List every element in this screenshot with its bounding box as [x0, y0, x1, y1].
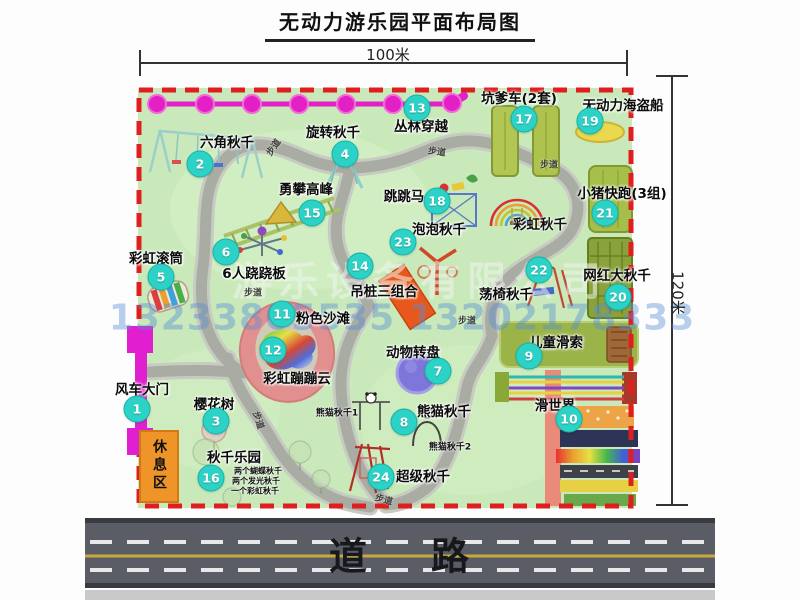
rest-area-label: 休息区 [149, 439, 169, 493]
attraction-badge-17: 17 [511, 106, 538, 133]
jumping-horse-icon [432, 174, 478, 226]
super-swing-icon [350, 444, 390, 493]
sub-label-0: 彩虹秋千 [513, 213, 567, 233]
walking-paths [150, 141, 578, 507]
hexagon-swing-icon [150, 130, 262, 178]
footpath-label-5: 步道 [250, 409, 268, 430]
park-lawn [138, 88, 632, 508]
attraction-badge-8: 8 [391, 409, 418, 436]
attraction-label-22: 荡椅秋千 [479, 283, 533, 303]
attraction-badge-9: 9 [516, 343, 543, 370]
jungle-crossing-line-icon [148, 94, 464, 113]
map-annotations: 风车大门1六角秋千2樱花树3旋转秋千4彩虹滚筒56人跷跷板6动物转盘7熊猫秋千8… [0, 0, 800, 600]
attraction-badge-2: 2 [187, 151, 214, 178]
attraction-badge-21: 21 [592, 200, 619, 227]
width-dimension-line [140, 50, 627, 76]
attraction-label-11: 粉色沙滩 [296, 307, 350, 327]
attraction-badge-1: 1 [124, 396, 151, 423]
sub-label-3: 两个蝴蝶秋千 [234, 466, 282, 477]
attraction-badge-12: 12 [260, 337, 287, 364]
pit-car-icon [492, 106, 559, 176]
attraction-label-17: 坑爹车(2套) [481, 87, 557, 107]
sub-label-5: 一个彩虹秋千 [231, 486, 279, 497]
seesaw-icon [237, 227, 287, 257]
attraction-badge-20: 20 [605, 284, 632, 311]
animal-turntable-icon [397, 353, 437, 393]
attraction-label-24: 超级秋千 [396, 465, 450, 485]
attraction-label-2: 六角秋千 [200, 131, 254, 151]
bubble-swing-icon [418, 248, 457, 295]
swing-park-trees-icon [193, 439, 330, 506]
width-dimension-label: 100米 [366, 44, 410, 65]
sub-label-1: 熊猫秋千1 [316, 406, 358, 419]
big-swing-net-icon [588, 238, 632, 318]
map-graphics [0, 0, 800, 600]
attraction-badge-15: 15 [299, 200, 326, 227]
road-label: 道路 [265, 526, 533, 581]
sub-label-4: 两个发光秋千 [232, 476, 280, 487]
attraction-badge-5: 5 [148, 264, 175, 291]
attraction-label-19: 无动力海盗船 [583, 94, 664, 114]
slide-world-icon [495, 370, 640, 506]
attraction-label-12: 彩虹蹦蹦云 [263, 367, 331, 387]
attraction-label-16: 秋千乐园 [207, 446, 261, 466]
footpath-label-4: 步道 [458, 314, 476, 327]
kids-zipline-icon [500, 322, 638, 367]
attraction-badge-13: 13 [404, 95, 431, 122]
bottom-road [85, 518, 715, 600]
attraction-label-23: 泡泡秋千 [412, 218, 466, 238]
park-boundary [139, 90, 631, 506]
attraction-badge-6: 6 [213, 239, 240, 266]
height-dimension-label: 120米 [668, 271, 689, 315]
page-title: 无动力游乐园平面布局图 [265, 6, 535, 42]
attraction-label-13: 丛林穿越 [394, 115, 448, 135]
attraction-badge-10: 10 [556, 406, 583, 433]
cherry-tree-icon [202, 418, 226, 452]
park-layout-map: 游乐设备有限公司 13233805535 13202178333 无动力游乐园平… [0, 0, 800, 600]
attraction-badge-4: 4 [332, 141, 359, 168]
rainbow-swing-icon [491, 200, 543, 226]
attraction-label-10: 滑世界 [535, 394, 576, 414]
attraction-badge-24: 24 [368, 464, 395, 491]
attraction-label-6: 6人跷跷板 [222, 262, 285, 282]
watermark-phone: 13233805535 13202178333 [109, 298, 696, 339]
attraction-label-21: 小猪快跑(3组) [577, 182, 666, 202]
attraction-label-14: 吊桩三组合 [350, 280, 418, 300]
attraction-label-3: 樱花树 [194, 393, 235, 413]
footpath-label-1: 步道 [427, 143, 447, 158]
hanging-pile-icon [379, 265, 436, 330]
footpath-label-2: 步道 [540, 158, 558, 171]
attraction-badge-22: 22 [526, 257, 553, 284]
attraction-label-7: 动物转盘 [386, 341, 440, 361]
attraction-label-18: 跳跳马 [384, 185, 425, 205]
attraction-badge-3: 3 [203, 408, 230, 435]
rotating-swing-icon [326, 150, 362, 188]
attraction-label-8: 熊猫秋千 [417, 400, 471, 420]
attraction-label-15: 勇攀高峰 [279, 178, 333, 198]
attraction-label-1: 风车大门 [115, 378, 169, 398]
attraction-badge-11: 11 [269, 301, 296, 328]
panda-swing-icon [352, 392, 441, 446]
footpath-label-6: 步道 [374, 490, 395, 507]
footpath-label-3: 步道 [244, 286, 262, 299]
attraction-label-4: 旋转秋千 [306, 121, 360, 141]
watermark-company: 游乐设备有限公司 [232, 249, 608, 307]
attraction-badge-19: 19 [577, 108, 604, 135]
attraction-badge-14: 14 [347, 253, 374, 280]
rainbow-cloud-icon [259, 330, 316, 370]
windmill-gate-icon [127, 326, 153, 455]
attraction-badge-7: 7 [425, 358, 452, 385]
attraction-badge-16: 16 [198, 465, 225, 492]
attraction-label-20: 网红大秋千 [583, 264, 651, 284]
climbing-peak-icon [224, 198, 340, 247]
attraction-badge-18: 18 [424, 188, 451, 215]
pirate-ship-icon [576, 122, 624, 142]
rest-area-icon [140, 431, 178, 502]
pink-beach-icon [231, 293, 344, 410]
rainbow-roller-icon [145, 278, 191, 314]
attraction-badge-23: 23 [390, 229, 417, 256]
sub-label-2: 熊猫秋千2 [429, 440, 471, 453]
footpath-label-0: 步道 [263, 136, 284, 158]
height-dimension-line [656, 76, 688, 505]
swing-chair-icon [528, 266, 572, 308]
attraction-label-5: 彩虹滚筒 [129, 247, 183, 267]
attraction-label-9: 儿童滑索 [529, 331, 583, 351]
piggy-run-icon [589, 166, 632, 232]
